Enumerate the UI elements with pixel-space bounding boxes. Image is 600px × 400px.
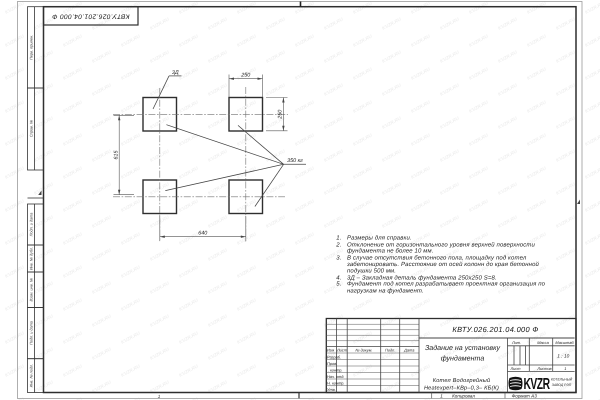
svg-text:Формат А3: Формат А3 (512, 393, 538, 398)
svg-text:Задание на установку: Задание на установку (425, 344, 501, 352)
svg-text:Котел Водогрейный: Котел Водогрейный (433, 377, 491, 384)
svg-text:615: 615 (113, 150, 119, 160)
svg-text:Размеры для справки.: Размеры для справки. (347, 235, 412, 242)
svg-text:Взам. инв. №: Взам. инв. № (30, 278, 34, 301)
svg-text:ЗАВОД РЭП: ЗАВОД РЭП (552, 383, 572, 387)
svg-text:№ докум.: № докум. (355, 348, 372, 353)
svg-text:Подп. и дата: Подп. и дата (30, 213, 34, 237)
svg-text:Heatexpert–КВр–0,3– КБ(К): Heatexpert–КВр–0,3– КБ(К) (424, 385, 499, 392)
svg-text:Лист: Лист (336, 348, 348, 353)
svg-text:Масса: Масса (537, 340, 549, 345)
svg-text:Фундамент под котел разрабатыв: Фундамент под котел разрабатывает проект… (347, 281, 546, 288)
svg-text:5.: 5. (336, 281, 341, 288)
svg-text:1: 1 (158, 394, 161, 399)
svg-text:3Д: 3Д (172, 70, 179, 76)
svg-text:1 : 10: 1 : 10 (557, 354, 569, 360)
svg-text:Утв.: Утв. (327, 387, 336, 392)
svg-text:Копировал: Копировал (452, 393, 475, 398)
svg-text:KVZR: KVZR (524, 376, 551, 393)
svg-text:Разраб.: Разраб. (327, 354, 341, 359)
svg-text:Изм: Изм (327, 348, 335, 353)
svg-text:Лит.: Лит. (511, 340, 521, 345)
svg-text:КОТЕЛЬНЫЙ: КОТЕЛЬНЫЙ (551, 377, 573, 382)
svg-text:Справ. №: Справ. № (30, 120, 34, 137)
svg-text:Инв. № дубл.: Инв. № дубл. (30, 247, 34, 270)
svg-text:Перв. примен.: Перв. примен. (30, 35, 34, 60)
svg-text:250: 250 (278, 110, 284, 120)
svg-text:250: 250 (240, 73, 250, 79)
svg-text:3Д – Закладная деталь фундамен: 3Д – Закладная деталь фундамента 250х250… (347, 274, 497, 281)
svg-text:КВТУ.026.201.04.000 Ф: КВТУ.026.201.04.000 Ф (452, 325, 538, 334)
svg-text:3.: 3. (336, 255, 341, 262)
svg-text:350 кг: 350 кг (287, 158, 303, 164)
svg-text:Инв. № подл.: Инв. № подл. (30, 364, 34, 388)
svg-text:В случае отсутствия бетонного: В случае отсутствия бетонного пола, площ… (347, 255, 527, 262)
svg-text:Масштаб: Масштаб (555, 340, 574, 345)
svg-text:подушки 500 мм.: подушки 500 мм. (347, 268, 396, 275)
svg-text:2.: 2. (335, 241, 341, 248)
svg-text:Н. контр.: Н. контр. (327, 380, 345, 385)
svg-text:1: 1 (440, 393, 443, 398)
svg-text:Отклонение от горизонтального: Отклонение от горизонтального уровня вер… (347, 241, 535, 248)
svg-text:Подп. и дата: Подп. и дата (30, 321, 34, 345)
svg-text:. контр.: . контр. (328, 367, 343, 372)
svg-text:Дата: Дата (403, 348, 415, 353)
svg-text:КВТУ.026.201.04.000 Ф: КВТУ.026.201.04.000 Ф (52, 12, 130, 19)
svg-text:1.: 1. (336, 235, 341, 242)
svg-text:640: 640 (198, 231, 207, 237)
svg-text:забетонировать. Расстояние от: забетонировать. Расстояние от осей колон… (346, 261, 540, 268)
svg-text:фундамента не более 10 мм.: фундамента не более 10 мм. (347, 248, 434, 255)
svg-text:4.: 4. (336, 274, 341, 281)
svg-text:Листов: Листов (536, 366, 551, 371)
svg-text:Пров.: Пров. (327, 361, 337, 366)
svg-text:Нач. отд.: Нач. отд. (327, 374, 344, 379)
svg-text:фундамента: фундамента (441, 354, 485, 362)
svg-text:Подп.: Подп. (385, 348, 395, 353)
svg-text:нагрузкам на фундамент.: нагрузкам на фундамент. (347, 287, 424, 294)
svg-text:1: 1 (564, 366, 566, 371)
svg-text:Лист: Лист (509, 366, 521, 371)
